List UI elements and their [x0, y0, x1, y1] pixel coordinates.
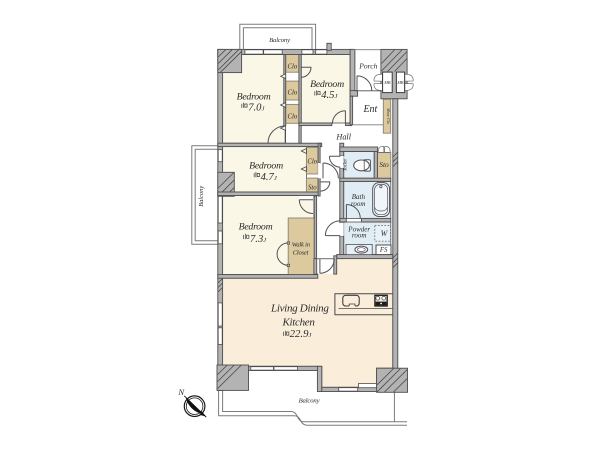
svg-text:Toilet: Toilet — [343, 159, 349, 172]
svg-text:Sto: Sto — [308, 184, 317, 191]
svg-text:Balcony: Balcony — [198, 186, 205, 207]
svg-text:Clo: Clo — [287, 114, 297, 121]
svg-text:FS: FS — [379, 247, 388, 254]
svg-text:Ent: Ent — [362, 104, 377, 115]
svg-text:Clo: Clo — [287, 64, 297, 71]
svg-text:MB: MB — [383, 80, 390, 85]
svg-text:Clo: Clo — [307, 159, 317, 166]
svg-text:Balcony: Balcony — [269, 37, 290, 44]
svg-text:Balcony: Balcony — [299, 398, 320, 405]
svg-text:Porch: Porch — [358, 61, 377, 70]
svg-text:Kitchen: Kitchen — [281, 317, 315, 329]
svg-text:Bedroom: Bedroom — [237, 92, 271, 103]
svg-text:Bedroom: Bedroom — [239, 222, 273, 233]
svg-text:Shoe Clo: Shoe Clo — [386, 108, 391, 125]
svg-text:room: room — [351, 200, 366, 208]
svg-text:Sto: Sto — [379, 160, 389, 169]
svg-text:room: room — [352, 232, 367, 240]
svg-text:Living Dining: Living Dining — [270, 302, 329, 314]
svg-text:MB: MB — [396, 80, 403, 85]
svg-text:Bedroom: Bedroom — [249, 161, 283, 172]
svg-text:Closet: Closet — [293, 250, 309, 257]
svg-text:Hall: Hall — [335, 133, 351, 142]
svg-text:Walk in: Walk in — [292, 241, 310, 248]
svg-text:Clo: Clo — [287, 89, 297, 96]
svg-text:Bedroom: Bedroom — [310, 79, 344, 90]
